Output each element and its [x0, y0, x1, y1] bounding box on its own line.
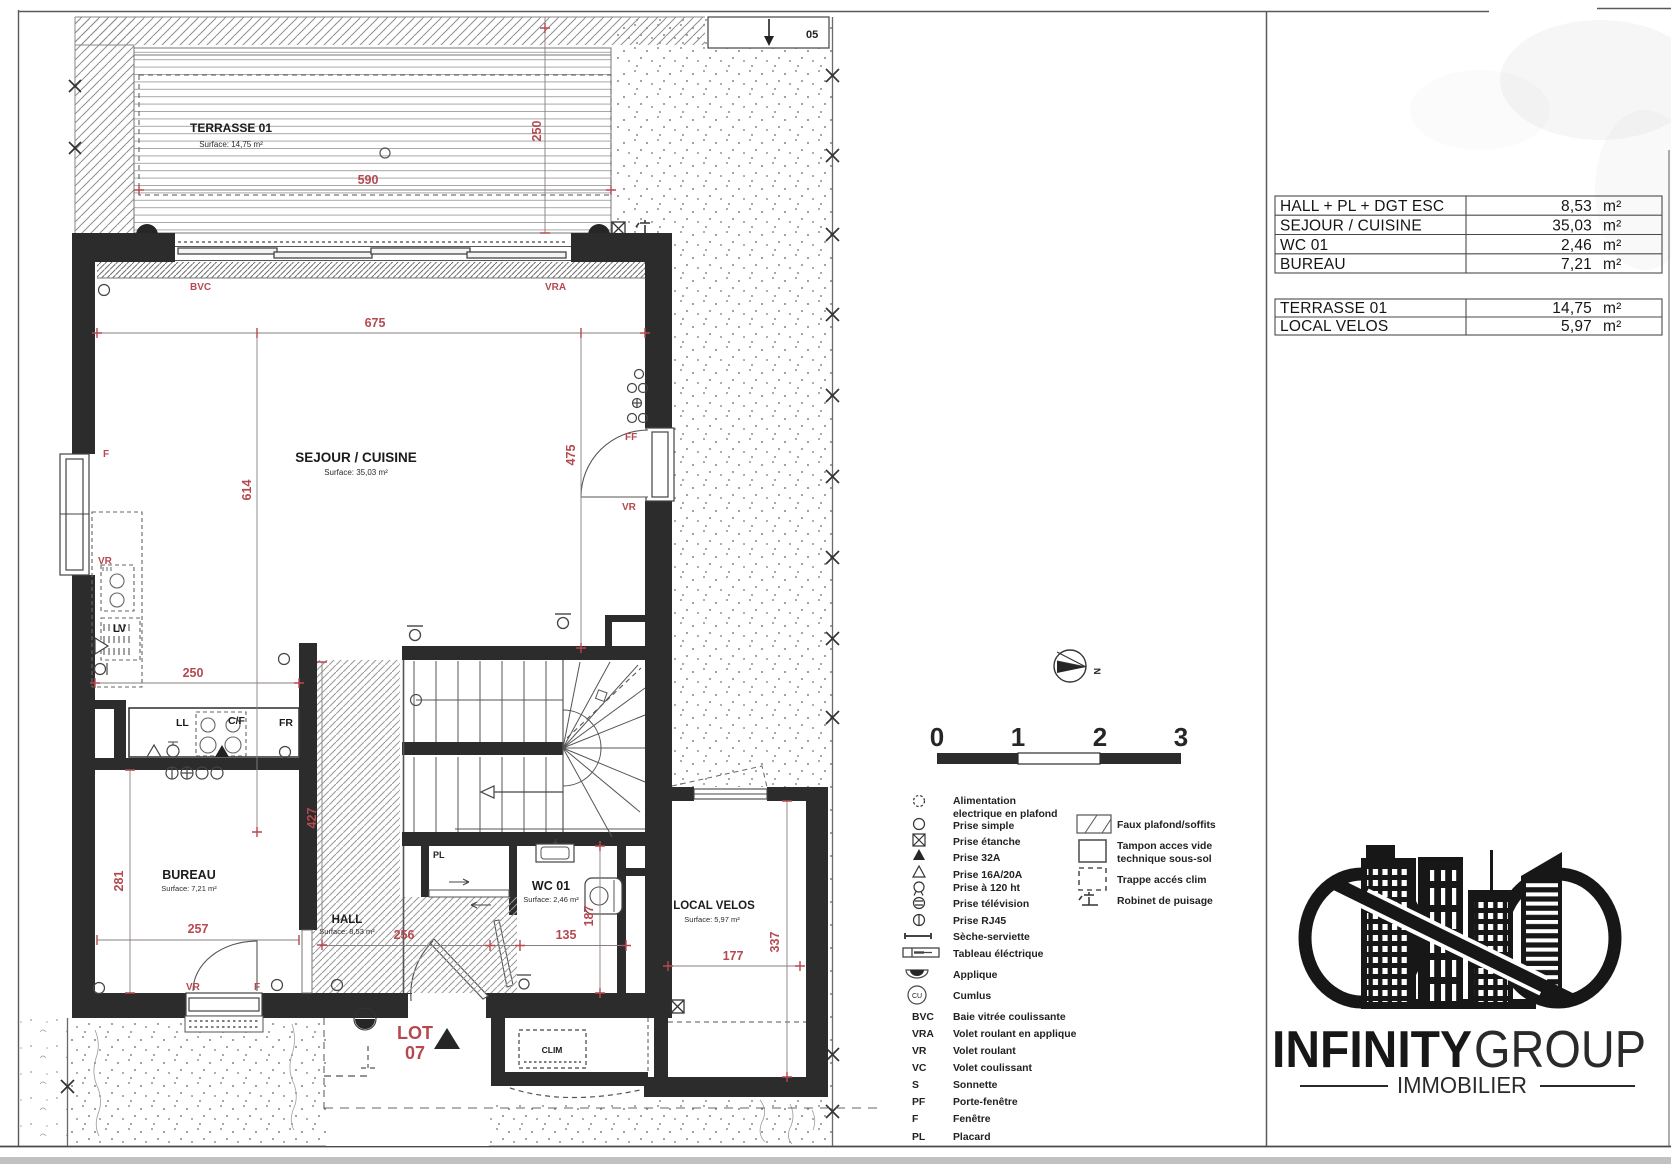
svg-text:Robinet de puisage: Robinet de puisage	[1117, 896, 1213, 907]
svg-text:Cumlus: Cumlus	[953, 991, 991, 1002]
svg-text:Surface: 8,53 m²: Surface: 8,53 m²	[319, 927, 375, 936]
svg-text:177: 177	[723, 949, 744, 963]
svg-text:PL: PL	[912, 1132, 926, 1143]
svg-text:0: 0	[930, 722, 944, 752]
svg-text:HALL: HALL	[332, 914, 363, 926]
svg-text:Sonnette: Sonnette	[953, 1080, 998, 1091]
svg-text:2: 2	[1093, 722, 1107, 752]
svg-text:WC 01: WC 01	[532, 879, 570, 893]
svg-text:Surface: 35,03 m²: Surface: 35,03 m²	[324, 468, 388, 477]
svg-text:135: 135	[556, 928, 577, 942]
svg-text:250: 250	[183, 666, 204, 680]
svg-text:IMMOBILIER: IMMOBILIER	[1397, 1072, 1527, 1098]
svg-text:Volet coulissant: Volet coulissant	[953, 1063, 1032, 1074]
svg-text:Tableau éléctrique: Tableau éléctrique	[953, 949, 1044, 960]
svg-text:PF: PF	[912, 1097, 925, 1108]
svg-text:675: 675	[365, 316, 386, 330]
svg-text:Surface: 7,21 m²: Surface: 7,21 m²	[161, 884, 217, 893]
svg-text:Surface: 5,97 m²: Surface: 5,97 m²	[684, 915, 740, 924]
svg-text:BVC: BVC	[912, 1012, 934, 1023]
svg-text:WC 01: WC 01	[1280, 237, 1328, 254]
svg-text:Prise RJ45: Prise RJ45	[953, 916, 1006, 927]
svg-text:VRA: VRA	[545, 282, 566, 293]
svg-text:TERRASSE 01: TERRASSE 01	[190, 121, 272, 135]
svg-text:SEJOUR / CUISINE: SEJOUR / CUISINE	[1280, 218, 1422, 235]
svg-text:m²: m²	[1603, 256, 1621, 273]
svg-text:Surface: 14,75 m²: Surface: 14,75 m²	[199, 140, 263, 149]
svg-text:187: 187	[582, 906, 596, 927]
svg-text:Tampon acces vide: Tampon acces vide	[1117, 841, 1212, 852]
svg-text:SEJOUR / CUISINE: SEJOUR / CUISINE	[295, 450, 417, 465]
svg-text:VR: VR	[622, 502, 637, 513]
svg-text:3: 3	[1174, 722, 1188, 752]
svg-text:2,46: 2,46	[1561, 237, 1592, 254]
svg-text:BUREAU: BUREAU	[162, 868, 215, 882]
svg-text:FF: FF	[625, 432, 637, 443]
svg-text:LV: LV	[113, 623, 127, 635]
svg-text:35,03: 35,03	[1552, 218, 1592, 235]
svg-text:N: N	[1092, 668, 1102, 675]
svg-text:BUREAU: BUREAU	[1280, 256, 1346, 273]
svg-text:m²: m²	[1603, 318, 1621, 335]
svg-text:m²: m²	[1603, 237, 1621, 254]
svg-text:Prise 32A: Prise 32A	[953, 853, 1001, 864]
svg-text:m²: m²	[1603, 300, 1621, 317]
svg-text:Faux plafond/soffits: Faux plafond/soffits	[1117, 820, 1216, 831]
svg-text:CU: CU	[912, 993, 922, 1000]
svg-text:Prise télévision: Prise télévision	[953, 899, 1029, 910]
svg-text:256: 256	[394, 928, 415, 942]
svg-text:PL: PL	[433, 850, 445, 860]
svg-text:Trappe accés clim: Trappe accés clim	[1117, 875, 1207, 886]
svg-text:GROUP: GROUP	[1474, 1021, 1646, 1079]
svg-text:590: 590	[358, 173, 379, 187]
svg-text:INFINITY: INFINITY	[1272, 1021, 1472, 1079]
svg-text:Prise à 120 ht: Prise à 120 ht	[953, 883, 1021, 894]
svg-text:14,75: 14,75	[1552, 300, 1592, 317]
svg-text:VR: VR	[186, 982, 201, 993]
svg-text:HALL + PL + DGT ESC: HALL + PL + DGT ESC	[1280, 198, 1444, 215]
svg-text:Baie vitrée coulissante: Baie vitrée coulissante	[953, 1012, 1066, 1023]
svg-text:Surface: 2,46 m²: Surface: 2,46 m²	[523, 895, 579, 904]
svg-text:m²: m²	[1603, 218, 1621, 235]
svg-text:Prise étanche: Prise étanche	[953, 837, 1021, 848]
svg-text:LOT: LOT	[397, 1023, 433, 1043]
svg-text:05: 05	[806, 29, 818, 41]
svg-text:07: 07	[405, 1043, 425, 1063]
svg-text:technique sous-sol: technique sous-sol	[1117, 854, 1212, 865]
svg-text:8,53: 8,53	[1561, 198, 1592, 215]
svg-text:F: F	[103, 449, 109, 460]
svg-text:VR: VR	[912, 1046, 927, 1057]
svg-text:LOCAL VELOS: LOCAL VELOS	[673, 900, 755, 912]
svg-text:Sèche-serviette: Sèche-serviette	[953, 932, 1030, 943]
svg-text:Prise simple: Prise simple	[953, 821, 1014, 832]
svg-text:CLIM: CLIM	[542, 1045, 563, 1055]
svg-text:427: 427	[305, 808, 319, 829]
svg-text:5,97: 5,97	[1561, 318, 1592, 335]
svg-text:LL: LL	[176, 717, 189, 729]
svg-text:F: F	[254, 982, 260, 993]
svg-text:Volet roulant en applique: Volet roulant en applique	[953, 1029, 1077, 1040]
svg-text:Alimentation: Alimentation	[953, 796, 1016, 807]
svg-text:337: 337	[768, 932, 782, 953]
svg-text:257: 257	[188, 922, 209, 936]
svg-text:VR: VR	[98, 556, 113, 567]
svg-text:Fenêtre: Fenêtre	[953, 1114, 991, 1125]
svg-text:7,21: 7,21	[1561, 256, 1592, 273]
svg-text:VRA: VRA	[912, 1029, 934, 1040]
svg-text:Volet roulant: Volet roulant	[953, 1046, 1016, 1057]
svg-text:FR: FR	[279, 717, 293, 729]
svg-text:Placard: Placard	[953, 1132, 991, 1143]
svg-text:281: 281	[112, 871, 126, 892]
svg-text:250: 250	[530, 121, 544, 142]
svg-text:1: 1	[1011, 722, 1025, 752]
svg-text:electrique en plafond: electrique en plafond	[953, 809, 1058, 820]
svg-text:m²: m²	[1603, 198, 1621, 215]
svg-text:Applique: Applique	[953, 970, 998, 981]
svg-text:475: 475	[564, 445, 578, 466]
svg-text:C/F: C/F	[228, 715, 246, 727]
svg-text:TERRASSE 01: TERRASSE 01	[1280, 300, 1387, 317]
svg-text:VC: VC	[912, 1063, 927, 1074]
svg-text:BVC: BVC	[190, 282, 211, 293]
svg-text:Prise 16A/20A: Prise 16A/20A	[953, 870, 1023, 881]
svg-text:Porte-fenêtre: Porte-fenêtre	[953, 1097, 1018, 1108]
svg-text:LOCAL VELOS: LOCAL VELOS	[1280, 318, 1388, 335]
svg-text:F: F	[912, 1114, 918, 1125]
svg-text:S: S	[912, 1080, 919, 1091]
svg-text:614: 614	[240, 480, 254, 501]
